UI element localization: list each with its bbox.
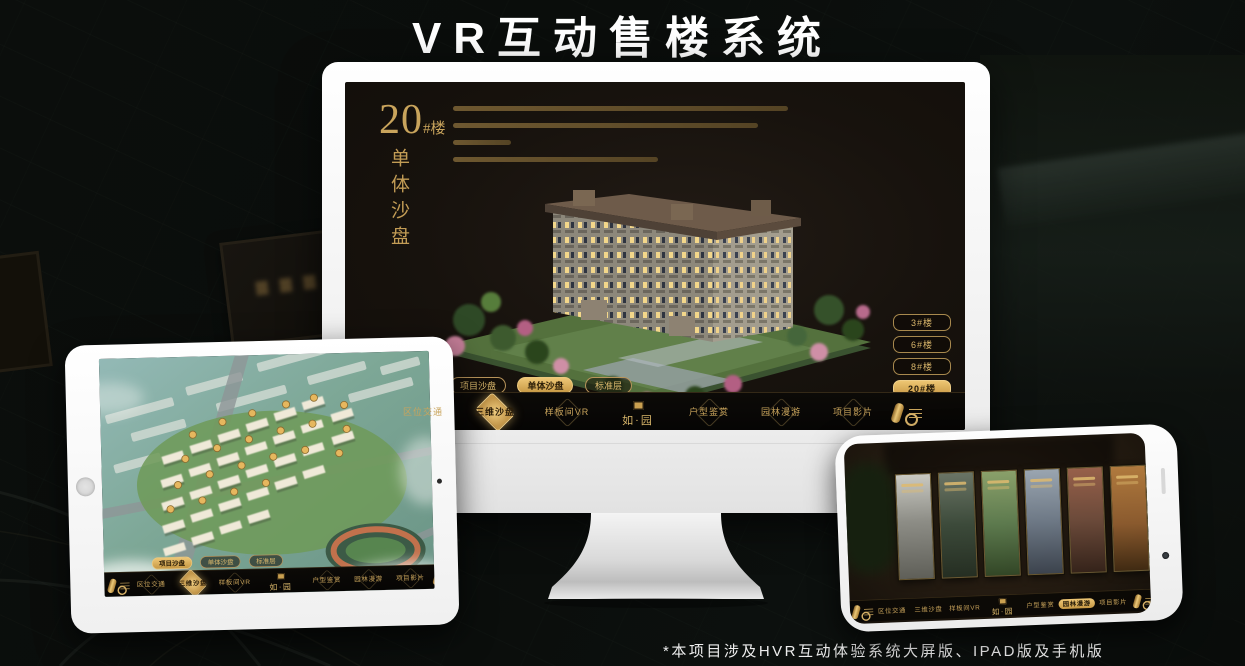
seal-logo-icon [277, 573, 285, 580]
card-caption [901, 483, 923, 487]
scene-card-gallery [895, 465, 1150, 581]
tab-single-sandtable[interactable]: 单体沙盘 [200, 555, 241, 568]
scroll-icon[interactable] [431, 568, 435, 584]
nav-item-garden-roam[interactable]: 园林漫游 [1058, 594, 1095, 611]
building-title-vertical: 单体沙盘 [385, 148, 412, 252]
poster-stage: VR互动售楼系统 *本项目涉及HVR互动体验系统大屏版、IPAD版及手机版 20… [0, 0, 1245, 666]
card-caption [1116, 475, 1138, 479]
card-caption [1073, 477, 1095, 481]
nav-item-unit-plans[interactable]: 户型鉴赏 [1022, 596, 1059, 613]
card-caption [1030, 478, 1052, 482]
tab-standard-floor[interactable]: 标准层 [249, 554, 283, 567]
nav-item-garden-roam[interactable]: 园林漫游 [745, 397, 817, 426]
description-line [453, 123, 758, 128]
scroll-icon[interactable] [106, 576, 131, 592]
building-number: 20 [379, 97, 423, 143]
nav-item-project-film[interactable]: 项目影片 [817, 397, 889, 426]
nav-item-showroom-vr[interactable]: 样板间VR [531, 397, 603, 426]
scene-card[interactable] [895, 473, 935, 580]
building-number-suffix: #楼 [423, 121, 446, 137]
nav-item-project-film[interactable]: 项目影片 [389, 568, 431, 587]
nav-item-location[interactable]: 区位交通 [874, 601, 911, 618]
nav-item-3d-sandtable[interactable]: 三维沙盘 [172, 573, 214, 592]
floor-button-group: 3#楼 6#楼 8#楼 20#楼 [893, 314, 955, 402]
phone-device: 区位交通 三维沙盘 样板间VR 如·园 户型鉴赏 园林漫游 项目影片 [834, 424, 1183, 633]
phone-screen: 区位交通 三维沙盘 样板间VR 如·园 户型鉴赏 园林漫游 项目影片 [844, 433, 1152, 624]
floor-button-3[interactable]: 3#楼 [893, 314, 951, 331]
nav-item-unit-plans[interactable]: 户型鉴赏 [306, 570, 348, 589]
monitor-stand [528, 513, 784, 613]
nav-item-3d-sandtable[interactable]: 三维沙盘 [459, 397, 531, 426]
floor-button-8[interactable]: 8#楼 [893, 358, 951, 375]
interior-plant [844, 462, 901, 574]
description-line [453, 140, 511, 145]
scroll-icon[interactable] [850, 603, 874, 619]
nav-item-3d-sandtable[interactable]: 三维沙盘 [910, 600, 947, 617]
description-line [453, 106, 788, 111]
brand-logo: 如·园 [603, 398, 673, 426]
scroll-icon[interactable] [1131, 592, 1151, 608]
scene-card[interactable] [981, 470, 1021, 577]
brand-logo: 如·园 [983, 595, 1023, 616]
page-title: VR互动售楼系统 [0, 2, 1245, 66]
seal-logo-icon [998, 598, 1006, 605]
tab-project-sandtable[interactable]: 项目沙盘 [152, 556, 193, 569]
nav-item-unit-plans[interactable]: 户型鉴赏 [673, 397, 745, 426]
footnote-text: *本项目涉及HVR互动体验系统大屏版、IPAD版及手机版 [663, 640, 1104, 661]
scroll-icon[interactable] [889, 401, 923, 423]
card-caption [944, 482, 966, 486]
brand-logo: 如·园 [255, 570, 306, 591]
nav-item-project-film[interactable]: 项目影片 [1095, 593, 1132, 610]
nav-item-showroom-vr[interactable]: 样板间VR [214, 572, 256, 591]
scene-card[interactable] [1110, 465, 1150, 572]
tablet-screen: 项目沙盘 单体沙盘 标准层 区位交通 三维沙盘 [99, 351, 435, 597]
card-caption [987, 480, 1009, 484]
floor-button-6[interactable]: 6#楼 [893, 336, 951, 353]
nav-item-showroom-vr[interactable]: 样板间VR [946, 599, 983, 616]
nav-item-garden-roam[interactable]: 园林漫游 [347, 569, 389, 588]
scene-card[interactable] [938, 471, 978, 578]
seal-logo-icon [633, 401, 644, 410]
scene-card[interactable] [1024, 468, 1064, 575]
nav-item-location[interactable]: 区位交通 [130, 574, 172, 593]
scene-card[interactable] [1067, 466, 1107, 573]
tablet-device: 项目沙盘 单体沙盘 标准层 区位交通 三维沙盘 [65, 336, 460, 633]
